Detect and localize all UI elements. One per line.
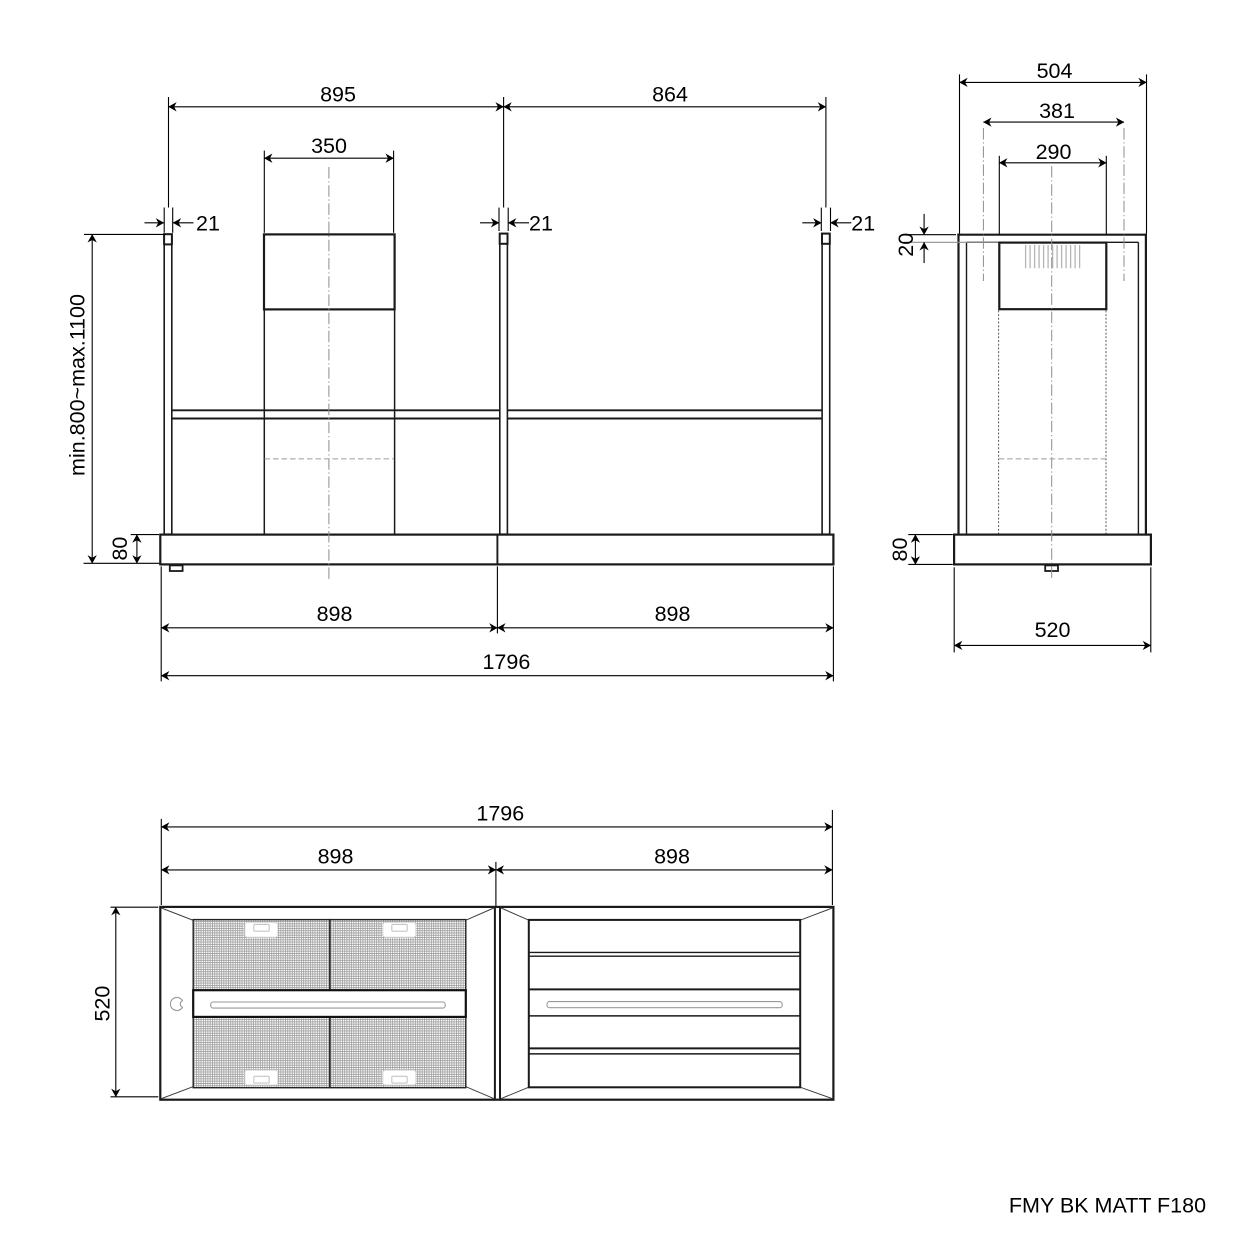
svg-text:350: 350 bbox=[311, 134, 347, 158]
svg-text:898: 898 bbox=[317, 602, 353, 626]
svg-text:min.800~max.1100: min.800~max.1100 bbox=[65, 294, 89, 476]
svg-text:864: 864 bbox=[652, 83, 688, 107]
svg-text:504: 504 bbox=[1037, 59, 1073, 83]
svg-text:381: 381 bbox=[1039, 99, 1075, 123]
svg-text:21: 21 bbox=[851, 211, 875, 235]
svg-text:898: 898 bbox=[655, 602, 691, 626]
svg-text:1796: 1796 bbox=[476, 802, 524, 826]
svg-text:21: 21 bbox=[196, 211, 220, 235]
svg-text:898: 898 bbox=[318, 845, 354, 869]
svg-text:898: 898 bbox=[654, 845, 690, 869]
svg-text:20: 20 bbox=[894, 233, 918, 257]
svg-text:520: 520 bbox=[91, 986, 115, 1022]
svg-text:895: 895 bbox=[320, 83, 356, 107]
svg-text:1796: 1796 bbox=[482, 650, 530, 674]
svg-text:290: 290 bbox=[1036, 140, 1072, 164]
svg-text:80: 80 bbox=[888, 538, 912, 562]
svg-text:520: 520 bbox=[1035, 618, 1071, 642]
svg-text:21: 21 bbox=[529, 211, 553, 235]
svg-text:80: 80 bbox=[108, 537, 132, 561]
svg-text:FMY BK MATT F180: FMY BK MATT F180 bbox=[1009, 1194, 1206, 1218]
